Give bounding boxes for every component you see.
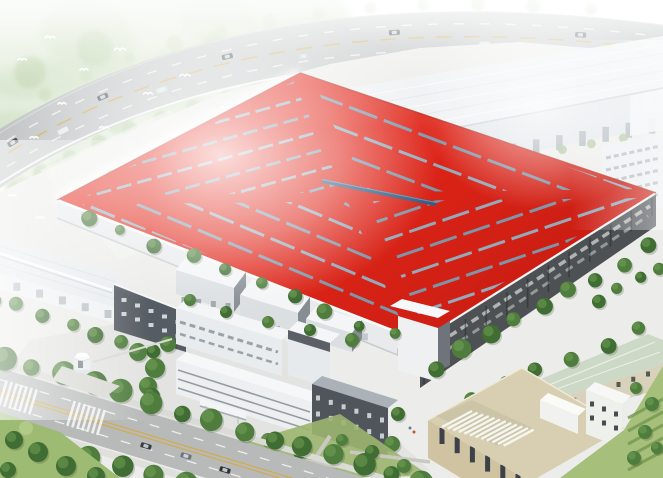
haze-right-edge	[570, 40, 663, 230]
bird-icon	[58, 103, 66, 104]
aerial-rendering	[0, 0, 663, 478]
haze-overlays	[0, 0, 663, 478]
bird-icon	[36, 217, 44, 218]
haze-left-edge	[0, 140, 150, 420]
bird-icon	[30, 137, 38, 138]
bird-icon	[8, 195, 16, 196]
bird-icon	[80, 69, 88, 70]
scene-canvas	[0, 0, 663, 478]
bird-icon	[221, 107, 229, 108]
